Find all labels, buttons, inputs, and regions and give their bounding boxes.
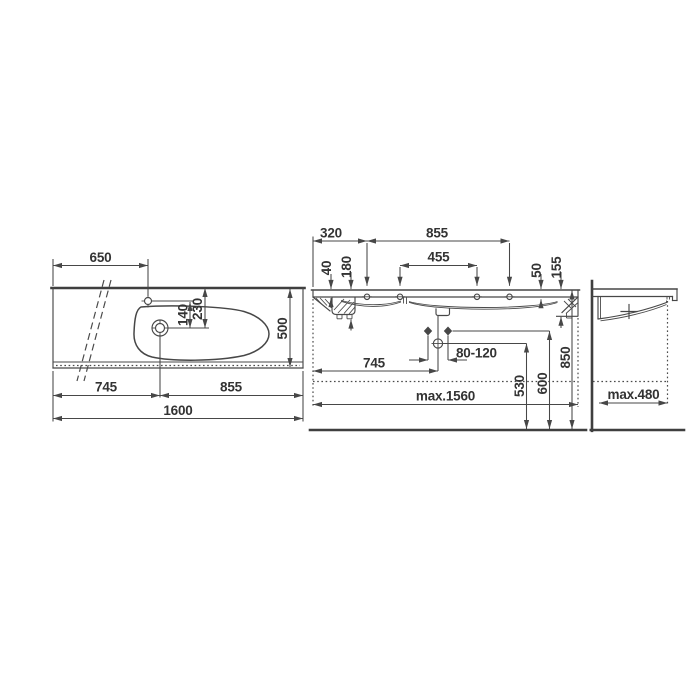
dim-500: 500 bbox=[275, 289, 290, 367]
tap-hole-icon bbox=[362, 294, 372, 299]
drain-pipe-position bbox=[432, 316, 445, 372]
dim-label-230: 230 bbox=[190, 298, 205, 320]
dim-label-1600: 1600 bbox=[163, 403, 192, 418]
dim-530: 530 bbox=[512, 344, 527, 430]
dim-label-600: 600 bbox=[535, 373, 550, 395]
dim-745-front: 745 bbox=[313, 356, 438, 372]
dim-label-745-front: 745 bbox=[363, 356, 386, 371]
washbasin-dimension-drawing: 650 140 230 500 745 855 1600 bbox=[0, 0, 700, 700]
dim-label-max480: max.480 bbox=[608, 387, 660, 402]
front-basin-floor bbox=[341, 297, 558, 316]
dim-label-140: 140 bbox=[176, 304, 191, 326]
dim-label-180: 180 bbox=[339, 256, 354, 278]
dim-155: 155 bbox=[549, 256, 578, 328]
dim-850: 850 bbox=[558, 291, 573, 430]
dim-180: 180 bbox=[339, 256, 354, 330]
dim-label-320: 320 bbox=[320, 226, 342, 241]
dim-label-155: 155 bbox=[549, 256, 564, 279]
dim-label-50: 50 bbox=[529, 263, 544, 278]
front-view: 320 855 455 40 180 50 155 bbox=[310, 226, 586, 431]
plan-view: 650 140 230 500 745 855 1600 bbox=[52, 250, 305, 422]
dim-label-40: 40 bbox=[319, 261, 334, 276]
dim-80-120: 80-120 bbox=[409, 346, 497, 361]
dim-50: 50 bbox=[529, 263, 544, 308]
dim-max480: max.480 bbox=[599, 387, 668, 403]
dim-855-front: 855 bbox=[367, 226, 510, 242]
dim-label-855: 855 bbox=[220, 380, 243, 395]
front-slab bbox=[312, 290, 580, 297]
dim-1600: 1600 bbox=[53, 403, 303, 419]
dim-label-max1560: max.1560 bbox=[416, 389, 475, 404]
dim-label-745: 745 bbox=[95, 380, 118, 395]
tap-hole-icon bbox=[472, 294, 482, 299]
dim-600: 600 bbox=[535, 331, 550, 429]
drain-icon bbox=[152, 320, 168, 336]
fixing-diamond-icon bbox=[424, 327, 432, 336]
dim-label-650: 650 bbox=[90, 250, 112, 265]
front-right-wall-section bbox=[562, 297, 578, 318]
technical-drawing-canvas: 650 140 230 500 745 855 1600 bbox=[0, 0, 700, 700]
dim-label-80-120: 80-120 bbox=[456, 346, 497, 361]
plan-mounting-strip bbox=[53, 362, 303, 366]
dim-label-855-front: 855 bbox=[426, 226, 449, 241]
dim-455: 455 bbox=[400, 250, 477, 266]
dim-label-530: 530 bbox=[512, 375, 527, 397]
dim-label-455: 455 bbox=[428, 250, 451, 265]
front-drain-notch bbox=[436, 309, 450, 316]
fixing-diamond-icon bbox=[444, 327, 452, 336]
dim-label-850: 850 bbox=[558, 347, 573, 369]
tap-hole-icon bbox=[505, 294, 515, 299]
front-left-wall-section bbox=[314, 298, 331, 312]
side-view: max.480 bbox=[591, 281, 684, 431]
side-slab bbox=[593, 289, 677, 301]
dim-label-500: 500 bbox=[275, 318, 290, 340]
side-bowl-profile bbox=[598, 297, 667, 321]
side-drain-centerline-cross bbox=[621, 305, 637, 319]
